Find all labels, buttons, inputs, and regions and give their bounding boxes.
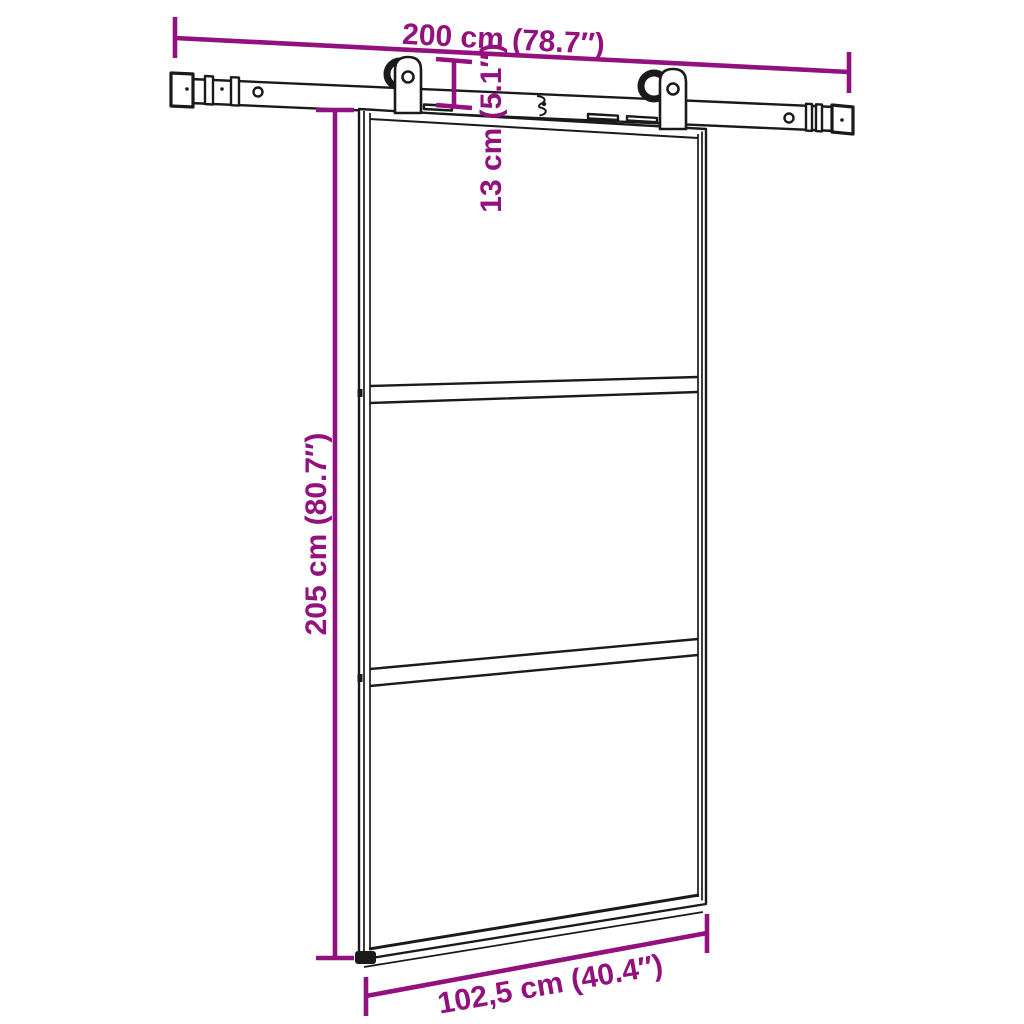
rail-joint-dot [542, 102, 546, 106]
anti-jump-block-right-1 [588, 114, 618, 120]
door-width-label: 102,5 cm (40.4″) [435, 949, 665, 1021]
floor-guide-foot [355, 951, 376, 964]
rail-cap-screw-left [185, 87, 189, 91]
rail-bracket-screw-left [220, 87, 224, 91]
hardware-drop-label: 13 cm (5.1″) [475, 43, 508, 212]
divider-fixing-screw-upper [358, 389, 363, 397]
hardware-drop-tick-top [436, 59, 472, 62]
product-diagram: 200 cm (78.7″) 13 cm (5.1″) 205 cm (80.7… [0, 0, 1024, 1024]
rail-mount-hole-right [785, 114, 794, 123]
divider-fixing-screw-lower [358, 674, 363, 682]
diagram-canvas: 200 cm (78.7″) 13 cm (5.1″) 205 cm (80.7… [0, 0, 1024, 1024]
door-panel [355, 105, 706, 968]
door-height-label: 205 cm (80.7″) [300, 433, 333, 636]
rail-mount-hole-left [254, 88, 263, 97]
rail-cap-screw-right [840, 118, 844, 122]
door-outline [359, 109, 706, 960]
left-hanger-strap [395, 57, 421, 113]
hardware-drop-tick-bottom [436, 105, 472, 108]
left-hanger-bolt-hole [403, 72, 414, 83]
right-hanger-bolt-hole [668, 84, 679, 95]
rail-left-end-cap [171, 73, 193, 107]
anti-jump-block-right-2 [627, 116, 657, 122]
right-hanger-strap [660, 69, 686, 129]
